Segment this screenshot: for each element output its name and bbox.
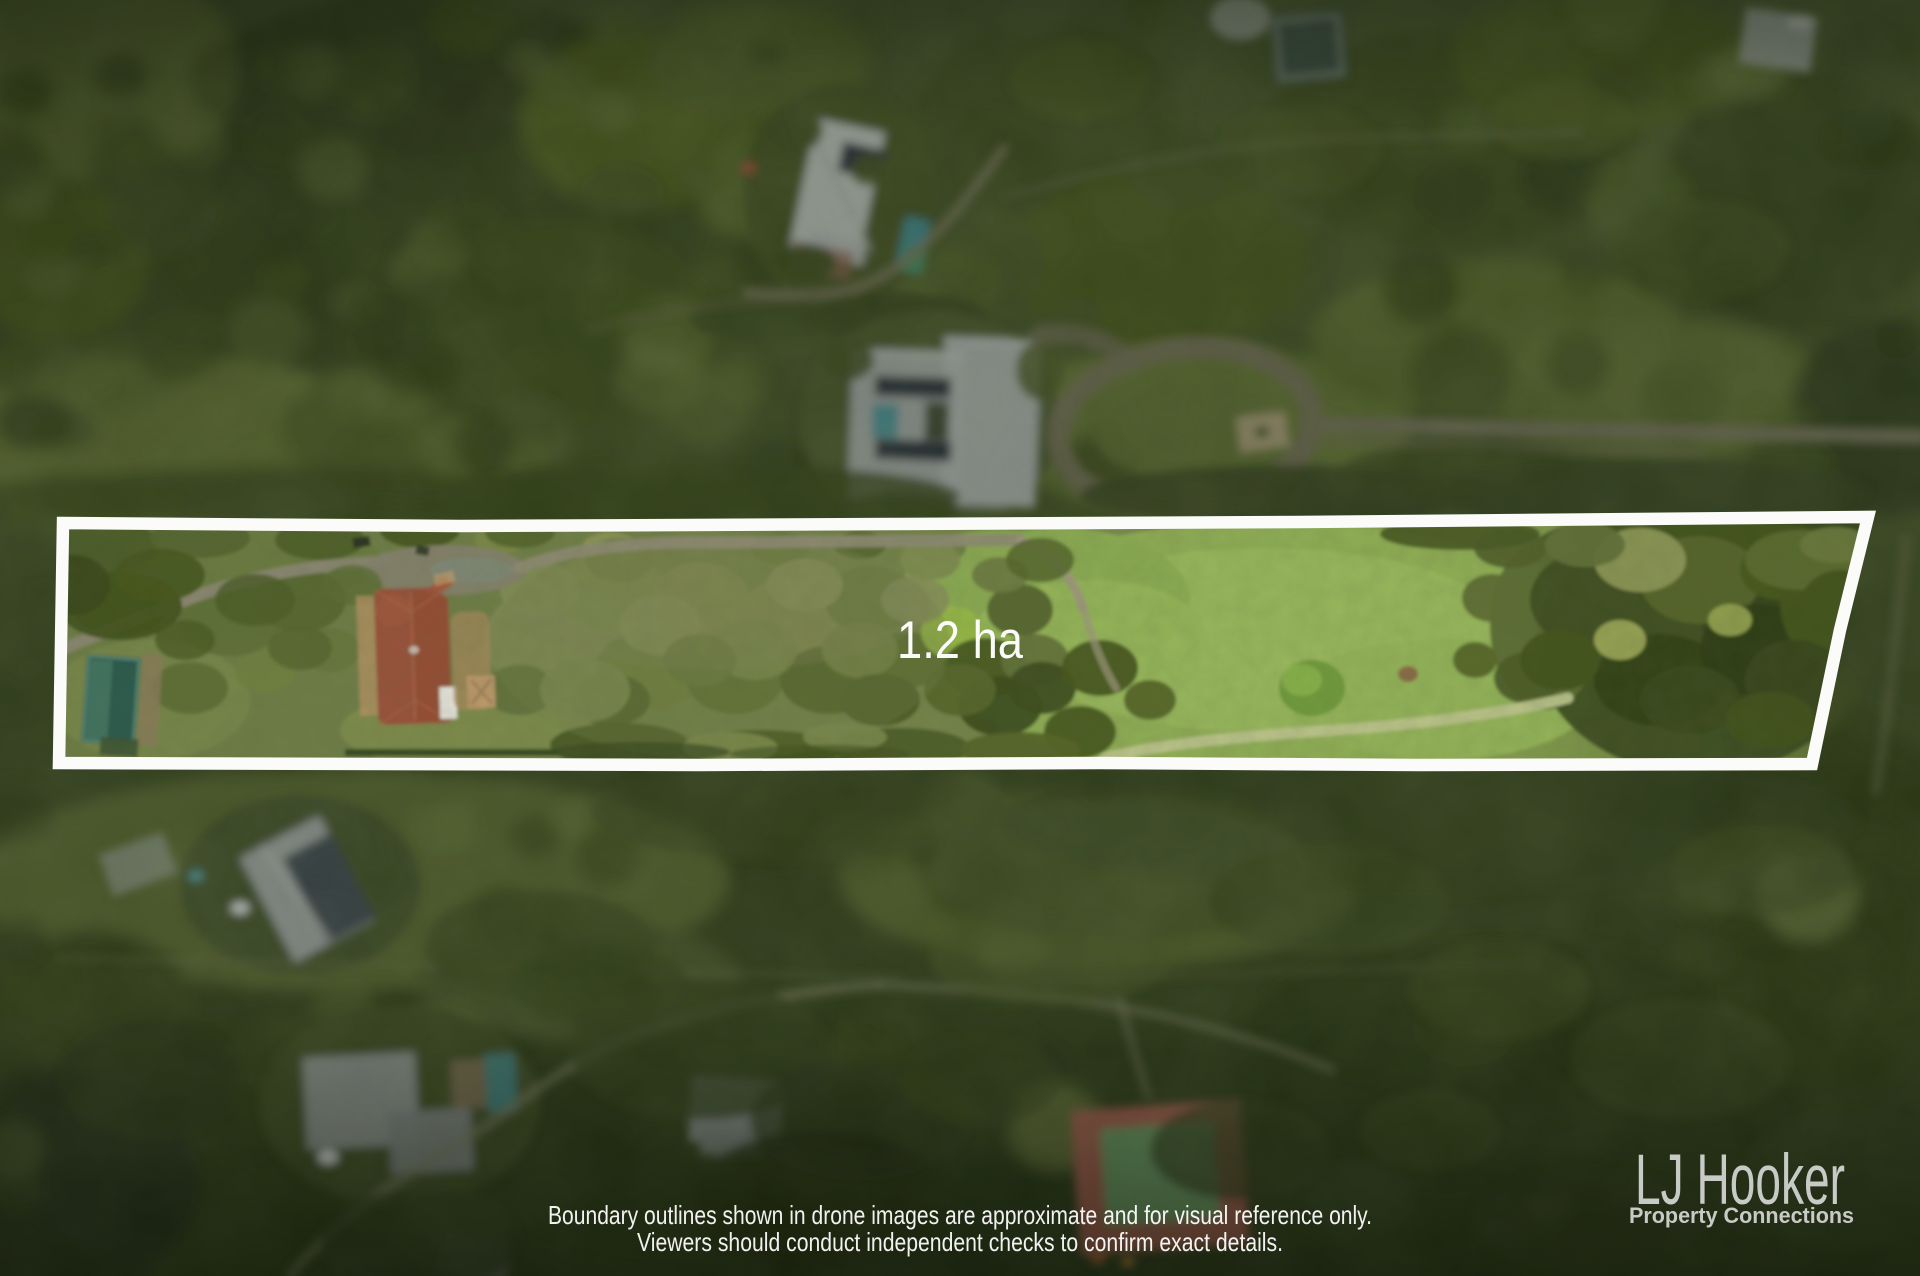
svg-text:Viewers should conduct indepen: Viewers should conduct independent check… [637, 1227, 1283, 1257]
svg-text:Property Connections: Property Connections [1629, 1203, 1854, 1228]
svg-text:1.2 ha: 1.2 ha [897, 611, 1023, 670]
svg-text:Boundary outlines shown in dro: Boundary outlines shown in drone images … [548, 1200, 1372, 1230]
